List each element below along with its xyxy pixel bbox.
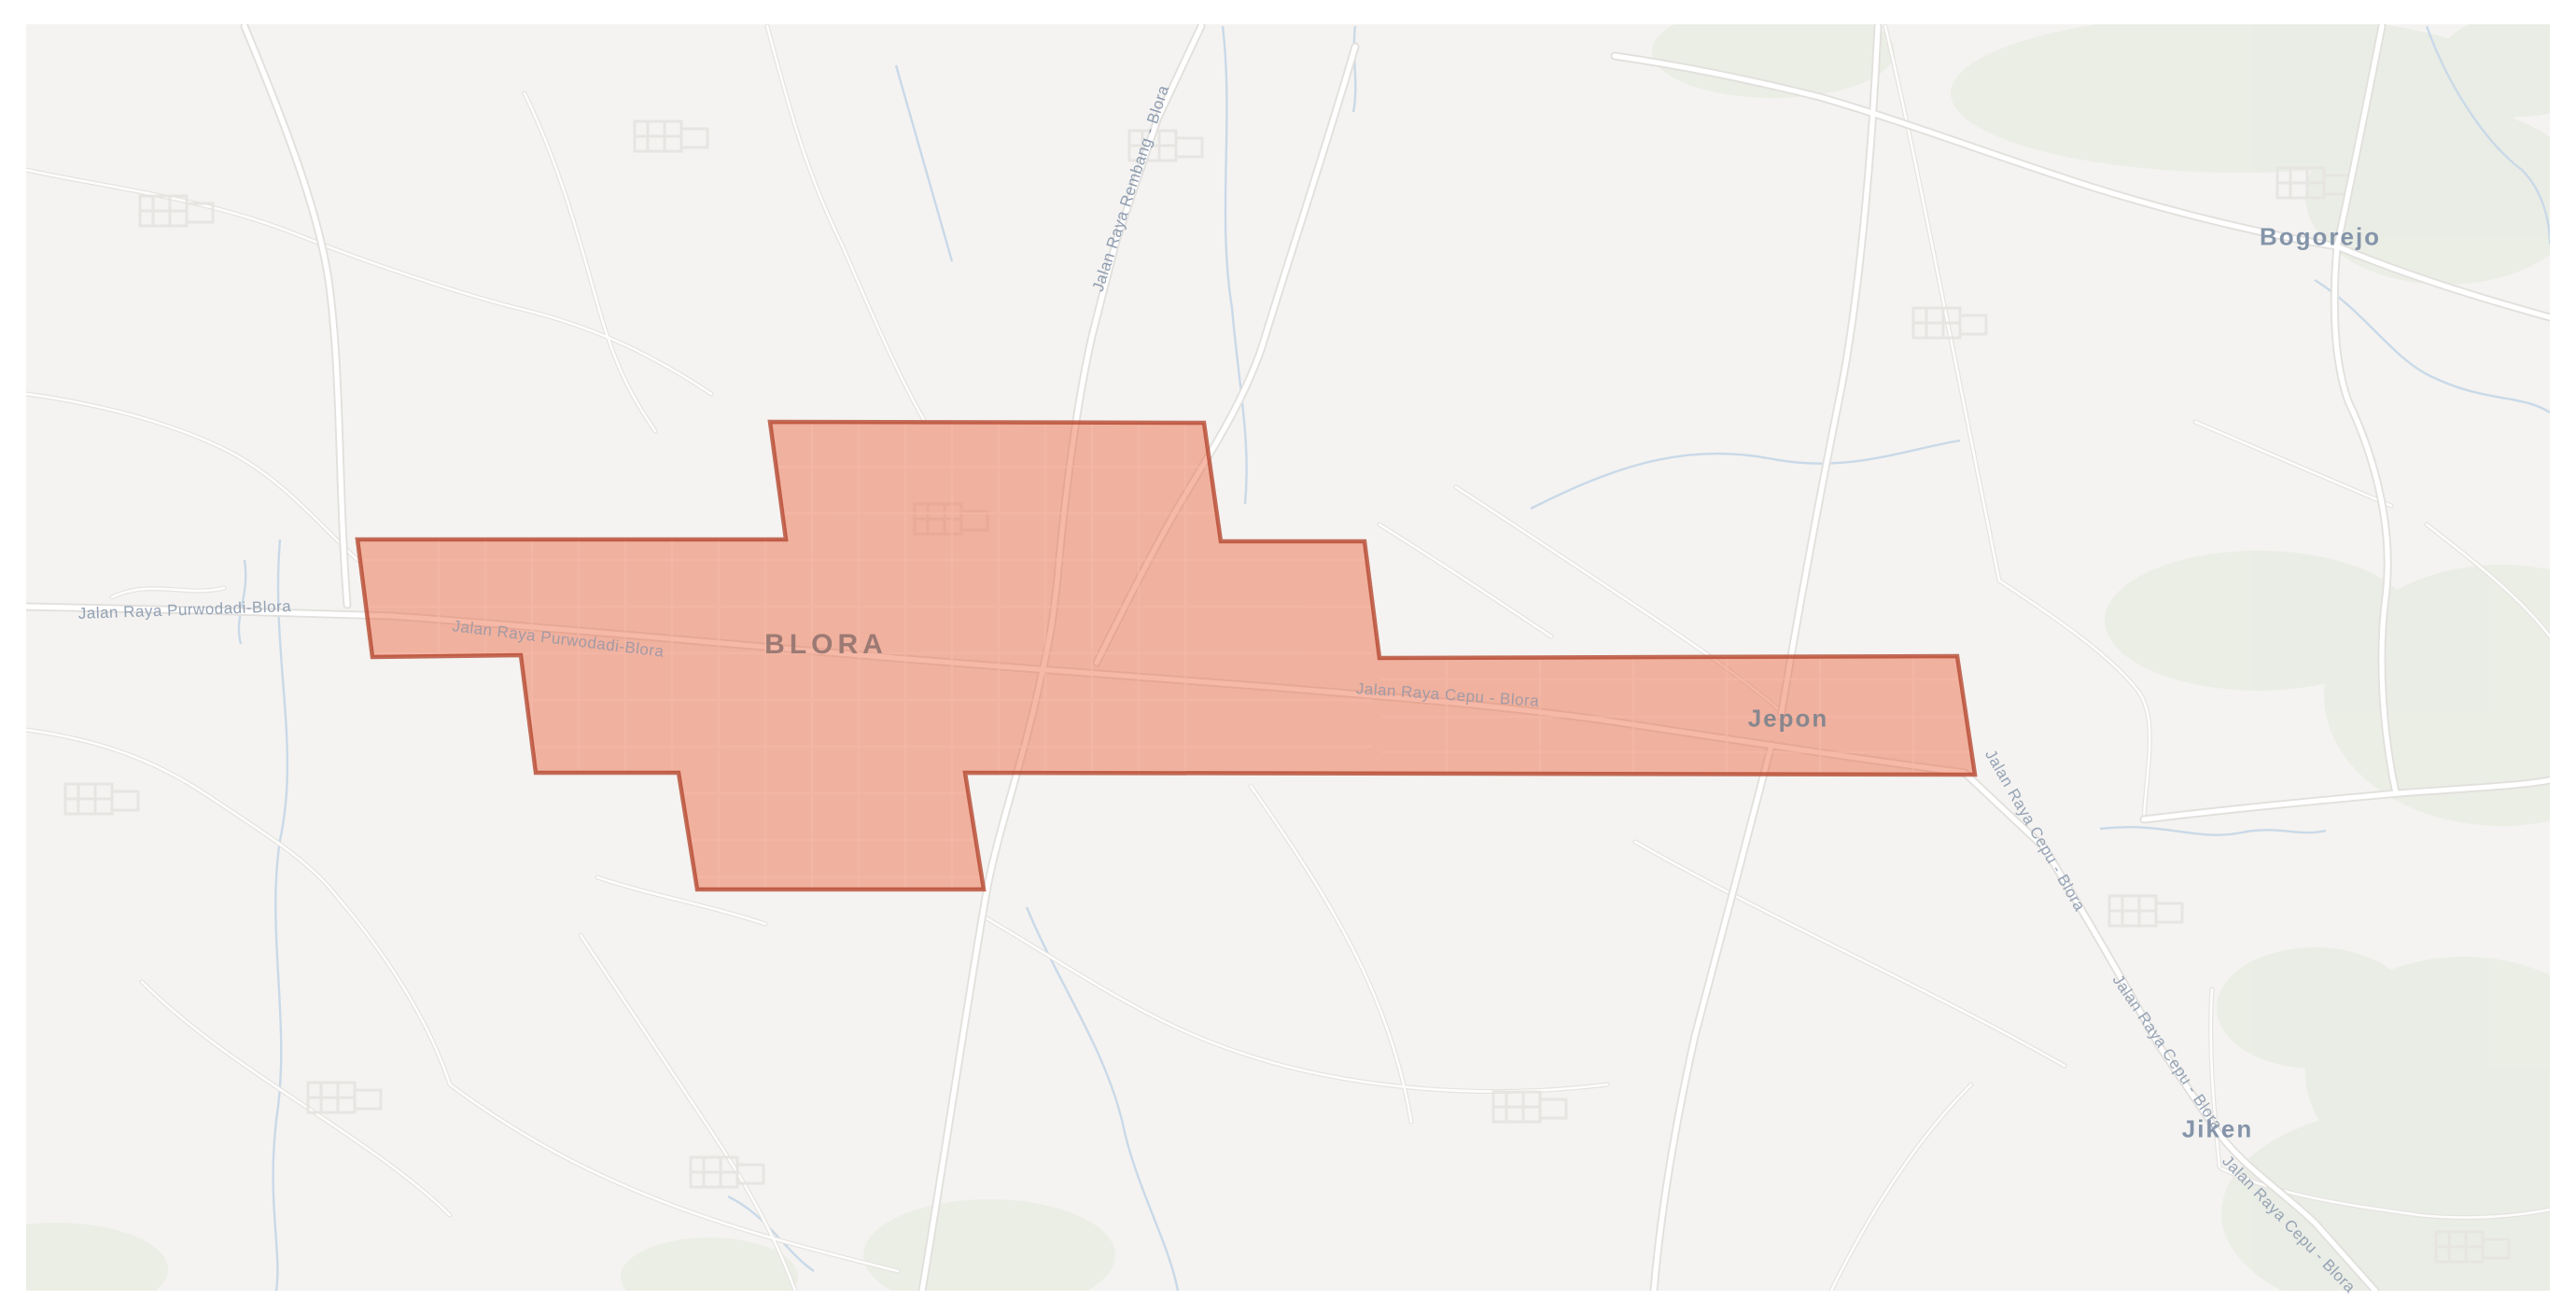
map-canvas[interactable]: BLORA Jepon Bogorejo Jiken Jalan Raya Pu… — [0, 0, 2576, 1315]
basemap — [0, 0, 2576, 1315]
